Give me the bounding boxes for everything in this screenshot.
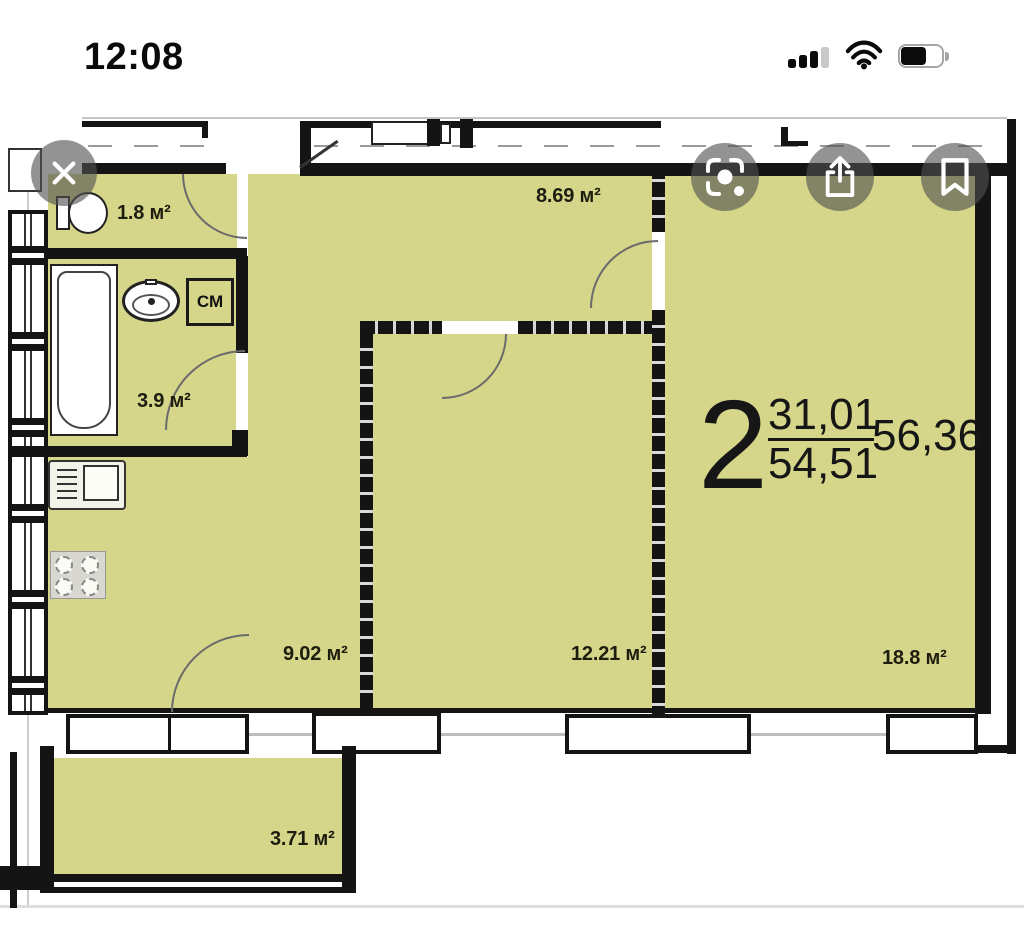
window-sill (886, 714, 978, 754)
top-outline-line (82, 117, 1007, 119)
window-frame-bars (12, 214, 44, 711)
sink-tap (145, 279, 157, 285)
signal-bar (821, 47, 829, 68)
wall-right-outer (1007, 119, 1016, 754)
signal-bar (799, 55, 807, 68)
wall-segment (977, 745, 1016, 753)
unit-area-fraction: 31,01 54,51 (768, 394, 874, 485)
corridor-axis-dashes (88, 145, 224, 147)
bathtub-inner (57, 271, 111, 429)
wall-segment (311, 121, 661, 128)
ground-line (0, 905, 1024, 908)
shaft-box (440, 123, 451, 144)
close-icon (48, 157, 80, 189)
status-time: 12:08 (84, 36, 184, 79)
wall-segment (82, 121, 206, 127)
room-label-balcony: 3.71 м² (270, 828, 335, 851)
share-button[interactable] (806, 143, 874, 211)
room-label-kitchen: 9.02 м² (283, 643, 348, 666)
signal-bar (788, 59, 796, 68)
window-wall-left (8, 210, 48, 715)
wall-bedroom-left (360, 333, 373, 714)
balcony-wall-bottom (40, 887, 356, 893)
burner (81, 556, 99, 574)
stove (50, 551, 106, 599)
washing-machine: СМ (186, 278, 234, 326)
window-glazing-line (249, 733, 312, 736)
room-label-toilet: 1.8 м² (117, 202, 171, 225)
sink-drain (148, 298, 155, 305)
corridor-axis-dashes (314, 145, 1004, 147)
signal-bar (810, 51, 818, 68)
share-icon (821, 154, 859, 200)
balcony-wall-bottom (40, 874, 356, 882)
bookmark-icon (938, 155, 972, 199)
room-label-hallway: 8.69 м² (536, 185, 601, 208)
unit-total-area: 54,51 (768, 443, 874, 485)
washing-machine-label: СМ (197, 292, 223, 312)
floor-plan-image: СМ 1.8 м² 8.69 м² 3.9 м² 9.02 м² 12.21 м… (0, 0, 1024, 947)
visual-lookup-icon (703, 155, 747, 199)
balcony-door-window (66, 714, 249, 754)
balcony-wall-right (342, 746, 356, 892)
wall-segment (82, 163, 226, 174)
window-sill (312, 712, 441, 754)
close-button[interactable] (31, 140, 97, 206)
kitchen-sink-basin (83, 465, 119, 501)
bookmark-button[interactable] (921, 143, 989, 211)
window-divider (168, 718, 171, 750)
burner (55, 578, 73, 596)
sink (122, 280, 180, 322)
wall-toilet-bath (48, 248, 247, 259)
burner (81, 578, 99, 596)
unit-room-count: 2 (698, 382, 768, 508)
dish-rack (57, 469, 77, 503)
balcony-wall-left (40, 746, 54, 892)
wall-segment (460, 119, 473, 148)
visual-lookup-button[interactable] (691, 143, 759, 211)
wall-hall-bedroom (518, 321, 665, 334)
wall-living-left (652, 164, 665, 232)
room-corridor (248, 321, 360, 457)
wall-segment (781, 141, 808, 146)
bathtub (50, 264, 118, 436)
wall-living-left (652, 310, 665, 714)
burner (55, 556, 73, 574)
unit-living-area: 31,01 (768, 394, 874, 436)
room-balcony (54, 758, 342, 876)
wall-bath-hall-upper (236, 256, 248, 353)
kitchen-sink-unit (48, 460, 126, 510)
room-label-bedroom: 12.21 м² (571, 643, 646, 666)
room-label-living: 18.8 м² (882, 647, 947, 670)
battery-icon (898, 44, 952, 69)
wifi-icon (845, 40, 883, 70)
battery-nub (945, 52, 949, 61)
wall-segment (202, 121, 208, 138)
wall-segment (427, 119, 440, 146)
window-sill (565, 714, 751, 754)
status-bar: 12:08 (0, 0, 1024, 100)
window-glazing-line (441, 733, 565, 736)
room-label-bathroom: 3.9 м² (137, 390, 191, 413)
window-glazing-line (751, 733, 886, 736)
shaft-box (371, 121, 429, 145)
battery-fill (901, 47, 926, 65)
cellular-signal-icon (788, 46, 830, 68)
unit-overall-area: 56,36 (872, 414, 982, 458)
wall-bath-kitchen (10, 446, 247, 457)
